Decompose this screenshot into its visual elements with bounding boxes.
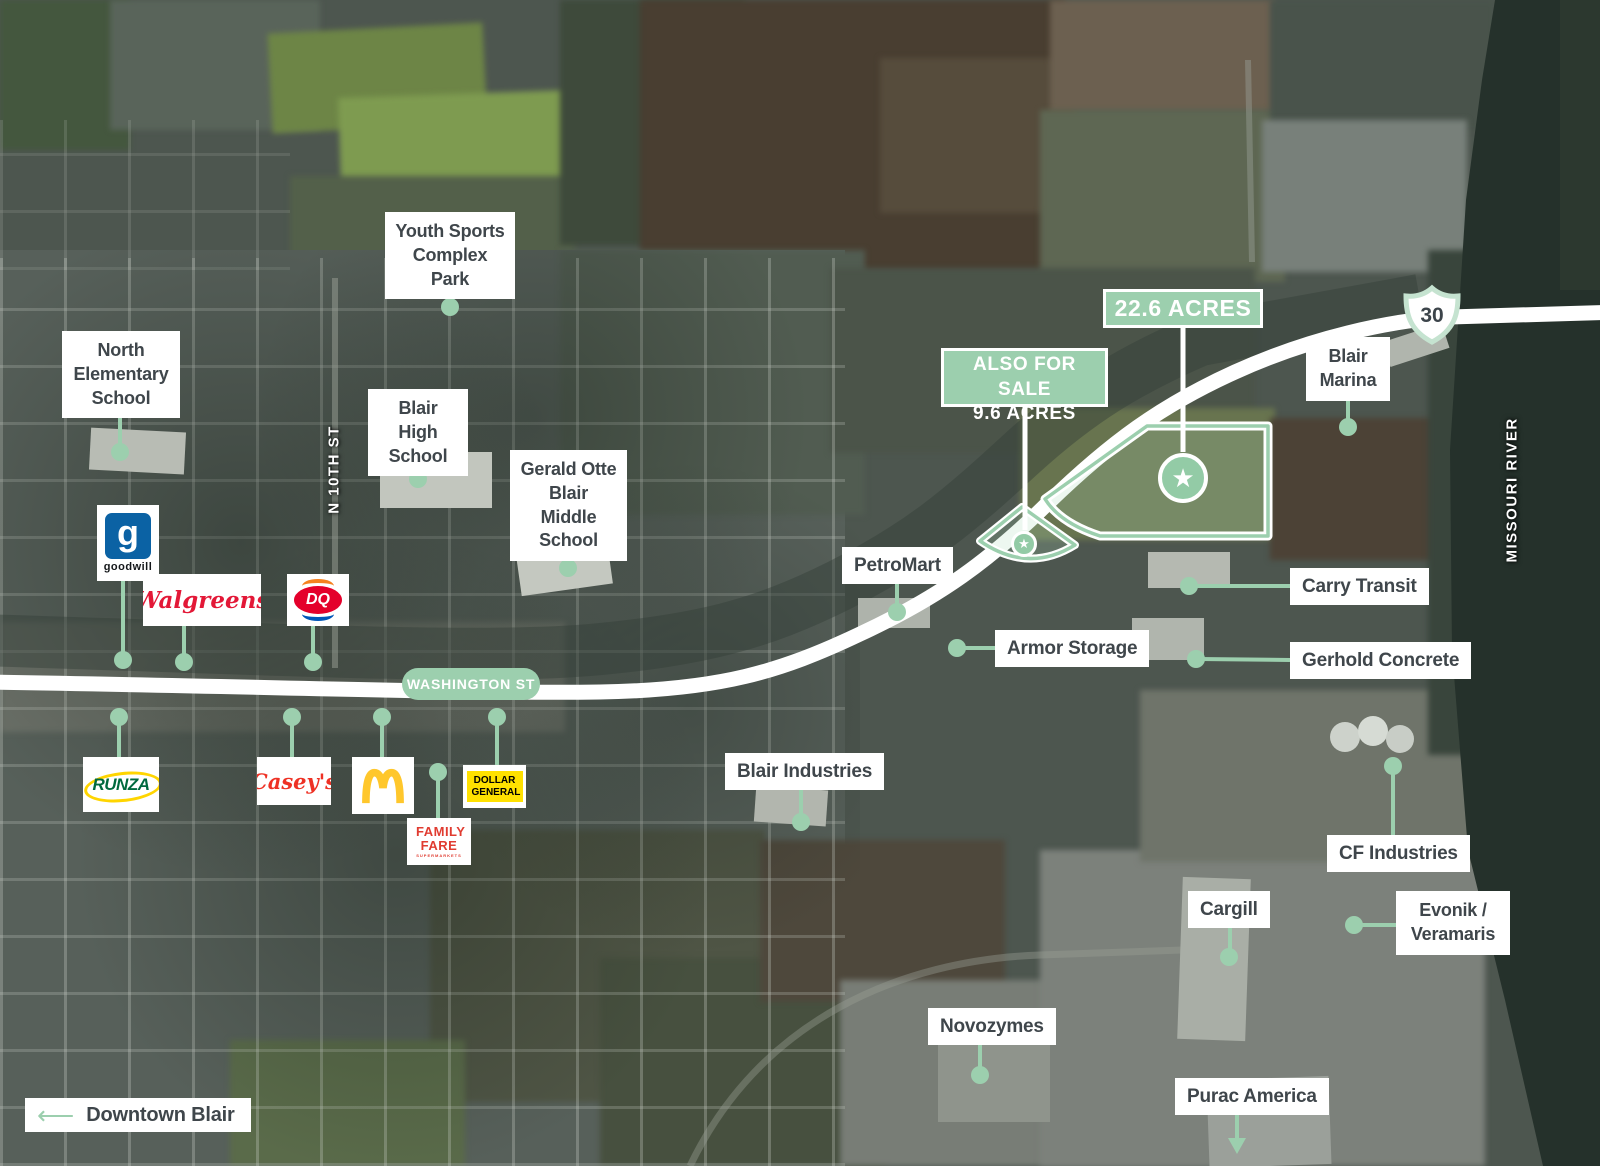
downtown-blair-text: Downtown Blair [86,1104,234,1127]
n-10th-st-label: N 10TH ST [326,420,343,520]
storage-silo [1358,716,1388,746]
label-cargill: Cargill [1188,891,1270,928]
leader-cf-industries [1384,757,1402,835]
runza-wordmark: RUNZA [93,775,150,795]
label-blair-industries: Blair Industries [725,753,884,790]
missouri-river-label: MISSOURI RIVER [1504,433,1521,563]
goodwill-wordmark: goodwill [104,561,153,573]
label-blair-marina: Blair Marina [1306,337,1390,401]
banner-line-1: ALSO FOR SALE [944,353,1105,402]
label-armor-storage: Armor Storage [995,630,1149,667]
label-cf-industries: CF Industries [1327,835,1470,872]
storage-silo [1386,725,1414,753]
banner-also-for-sale-9-6: ALSO FOR SALE 9.6 ACRES [941,348,1108,407]
goodwill-g-icon: g [105,513,151,559]
storage-silo [1330,722,1360,752]
family-fare-logo-card: FAMILY FARE SUPERMARKETS [407,818,471,865]
arrow-left-icon: ⟵ [37,1102,74,1128]
aerial-map: 30 ★ ★ 22.6 ACRES ALSO FOR SALE 9.6 ACRE… [0,0,1600,1166]
leader-family-fare [429,763,447,818]
label-evonik-veramaris: Evonik / Veramaris [1396,891,1510,955]
leader-runza [110,708,128,757]
parcel-9-6-star-marker: ★ [1011,531,1037,557]
dq-icon: DQ [294,586,342,614]
leader-evonik [1345,916,1398,934]
washington-st-pill: WASHINGTON ST [402,668,540,700]
walgreens-wordmark: Walgreens [143,587,261,614]
parcel-22-6-star-marker: ★ [1158,453,1208,503]
walgreens-logo-card: Walgreens [143,574,261,626]
highway-30-number: 30 [1420,304,1443,327]
label-petromart: PetroMart [842,547,953,584]
downtown-blair-label: ⟵ Downtown Blair [25,1098,251,1132]
dq-orange-swoosh-icon [302,579,334,593]
dollar-general-wordmark: DOLLAR GENERAL [467,771,523,802]
family-fare-subtext: SUPERMARKETS [416,853,462,858]
runza-logo-card: RUNZA [83,757,159,812]
goodwill-logo-card: g goodwill [97,505,159,581]
leader-caseys [283,708,301,757]
caseys-wordmark: Casey's [257,769,331,794]
family-fare-wordmark: FAMILY FARE [416,825,462,852]
dq-blue-swoosh-icon [302,607,334,621]
plant-access-road [1248,60,1252,262]
mcdonalds-logo-card [352,757,414,814]
river-east-bank-trees [1560,0,1600,290]
label-carry-transit: Carry Transit [1290,568,1429,605]
dq-logo-card: DQ [287,574,349,626]
star-icon: ★ [1018,536,1030,552]
building [89,428,186,475]
label-novozymes: Novozymes [928,1008,1056,1045]
runza-icon: RUNZA [86,770,156,800]
caseys-logo-card: Casey's [257,757,331,805]
mcdonalds-arches-icon [360,767,406,805]
building [938,1038,1050,1122]
label-youth-sports: Youth Sports Complex Park [385,212,515,299]
dollar-general-logo-card: DOLLAR GENERAL [463,765,526,808]
parcel-22-6-acres [1045,426,1268,536]
label-gerhold-concrete: Gerhold Concrete [1290,642,1471,679]
label-north-elementary: North Elementary School [62,331,180,418]
building [754,786,828,827]
banner-line-2: 9.6 ACRES [944,402,1105,427]
label-gerald-otte: Gerald Otte Blair Middle School [510,450,627,561]
label-blair-high: Blair High School [368,389,468,476]
banner-22-6-acres: 22.6 ACRES [1103,289,1263,328]
leader-armor-storage [948,639,995,657]
leader-dollar-general [488,708,506,765]
leader-blair-marina [1339,396,1357,436]
star-icon: ★ [1171,463,1194,494]
label-purac-america: Purac America [1175,1078,1329,1115]
leader-mcdonalds [373,708,391,757]
